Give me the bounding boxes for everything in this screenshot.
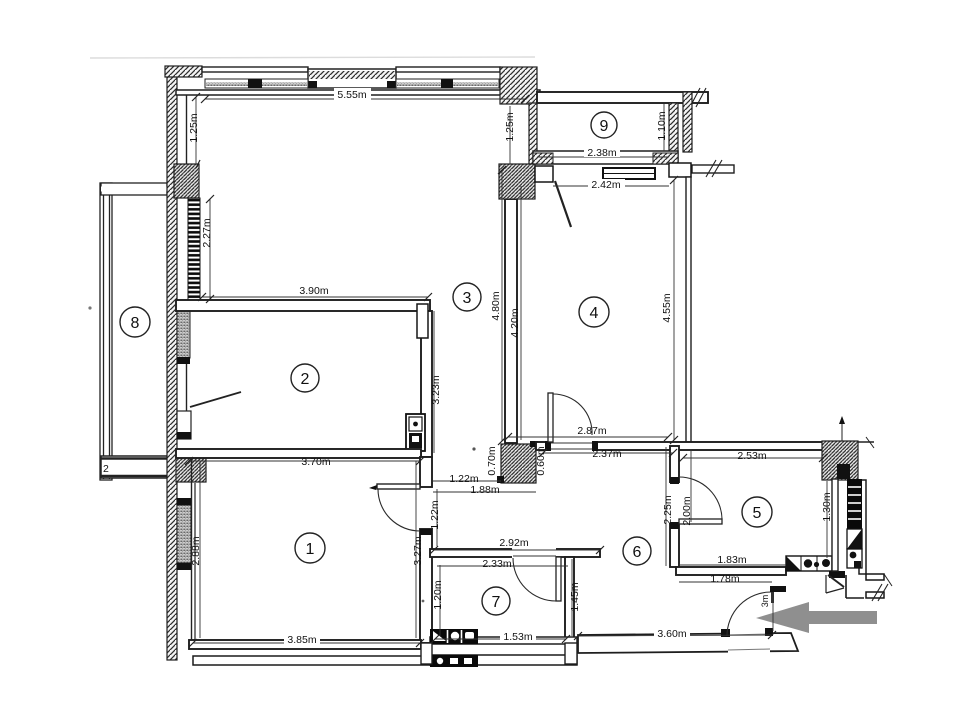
svg-text:2.25m: 2.25m [662,495,674,524]
svg-text:2.92m: 2.92m [499,537,528,549]
svg-text:1: 1 [306,541,315,558]
svg-text:1.88m: 1.88m [470,484,499,496]
svg-text:1.45m: 1.45m [569,582,581,611]
svg-text:2.87m: 2.87m [577,425,606,437]
svg-text:2.33m: 2.33m [482,558,511,570]
svg-text:5: 5 [753,505,762,522]
svg-text:2.27m: 2.27m [201,218,213,247]
svg-text:1.10m: 1.10m [656,111,668,140]
svg-text:1.20m: 1.20m [432,580,444,609]
svg-text:1.83m: 1.83m [717,554,746,566]
svg-text:2.38m: 2.38m [587,147,616,159]
svg-text:9: 9 [600,118,609,135]
svg-text:3.23m: 3.23m [430,375,442,404]
svg-text:4.20m: 4.20m [509,308,521,337]
svg-text:3.70m: 3.70m [301,456,330,468]
svg-text:3.27m: 3.27m [412,536,424,565]
svg-text:4.80m: 4.80m [490,291,502,320]
svg-text:2.42m: 2.42m [591,179,620,191]
svg-text:1.22m: 1.22m [429,500,441,529]
svg-text:0.60m: 0.60m [535,446,547,475]
svg-text:8: 8 [131,315,140,332]
svg-text:2.53m: 2.53m [737,450,766,462]
svg-text:1.25m: 1.25m [188,113,200,142]
svg-text:5.55m: 5.55m [337,89,366,101]
svg-text:0.70m: 0.70m [486,446,498,475]
svg-text:6: 6 [633,544,642,561]
svg-text:4: 4 [590,305,599,322]
svg-text:3m: 3m [760,595,770,608]
svg-text:3.60m: 3.60m [657,628,686,640]
svg-text:1.25m: 1.25m [504,112,516,141]
svg-text:3.90m: 3.90m [299,285,328,297]
svg-text:4.55m: 4.55m [661,293,673,322]
svg-text:3.85m: 3.85m [287,634,316,646]
svg-text:2.88m: 2.88m [190,536,202,565]
svg-text:2: 2 [301,371,310,388]
svg-text:1.78m: 1.78m [710,573,739,585]
svg-text:1.53m: 1.53m [503,631,532,643]
svg-text:2.37m: 2.37m [592,448,621,460]
svg-text:7: 7 [492,594,501,611]
svg-text:2: 2 [103,463,109,475]
svg-text:2.00m: 2.00m [681,496,693,525]
svg-text:1.30m: 1.30m [821,492,833,521]
svg-text:3: 3 [463,290,472,307]
